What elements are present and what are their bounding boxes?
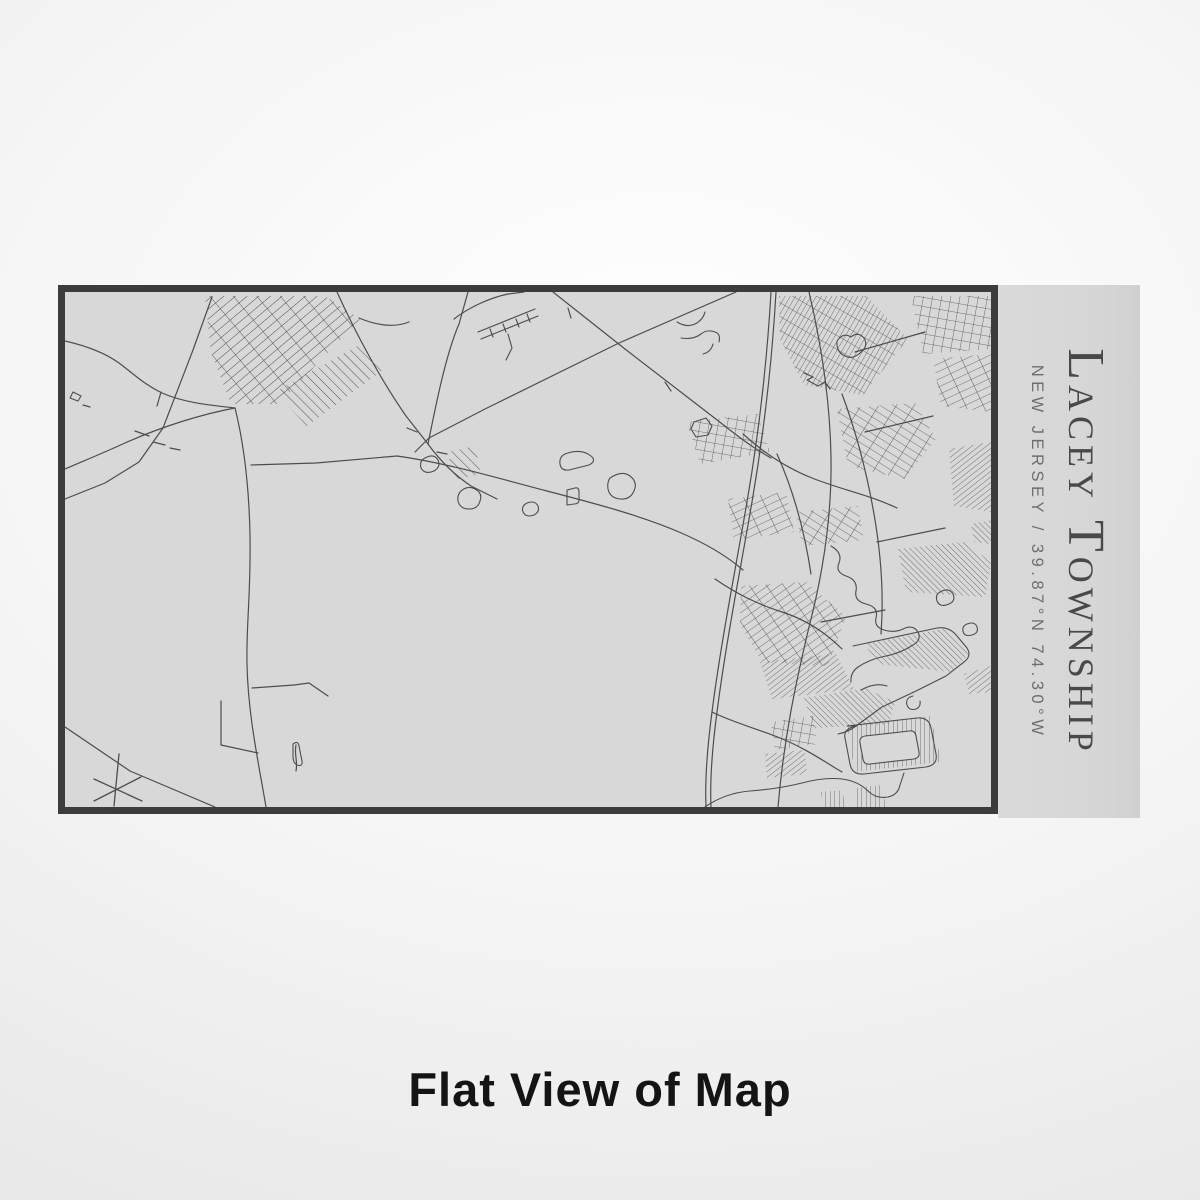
label-panel: Lacey Township NEW JERSEY / 39.87°N 74.3… bbox=[998, 285, 1140, 818]
compass-asterisk bbox=[94, 754, 142, 806]
map-title: Lacey Township bbox=[1059, 285, 1111, 818]
dense-street-districts bbox=[205, 296, 991, 807]
rotated-label-block: Lacey Township NEW JERSEY / 39.87°N 74.3… bbox=[1027, 285, 1111, 818]
airport-runways bbox=[478, 309, 538, 360]
view-caption: Flat View of Map bbox=[0, 1062, 1200, 1117]
map-graphic bbox=[65, 292, 991, 807]
map-subtitle: NEW JERSEY / 39.87°N 74.30°W bbox=[1027, 285, 1046, 818]
map-product-preview: Lacey Township NEW JERSEY / 39.87°N 74.3… bbox=[0, 0, 1200, 1200]
map-panel bbox=[58, 285, 998, 814]
